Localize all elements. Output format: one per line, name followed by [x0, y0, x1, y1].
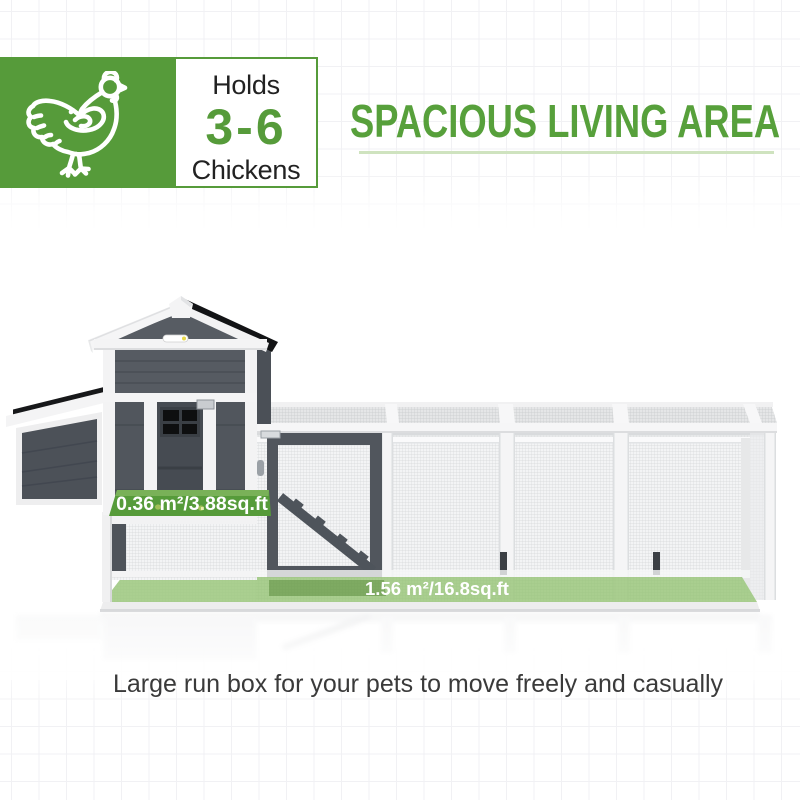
svg-text:1.56 m²/16.8sq.ft: 1.56 m²/16.8sq.ft	[365, 578, 509, 599]
svg-text:0.36 m²/3.88sq.ft: 0.36 m²/3.88sq.ft	[116, 493, 268, 515]
